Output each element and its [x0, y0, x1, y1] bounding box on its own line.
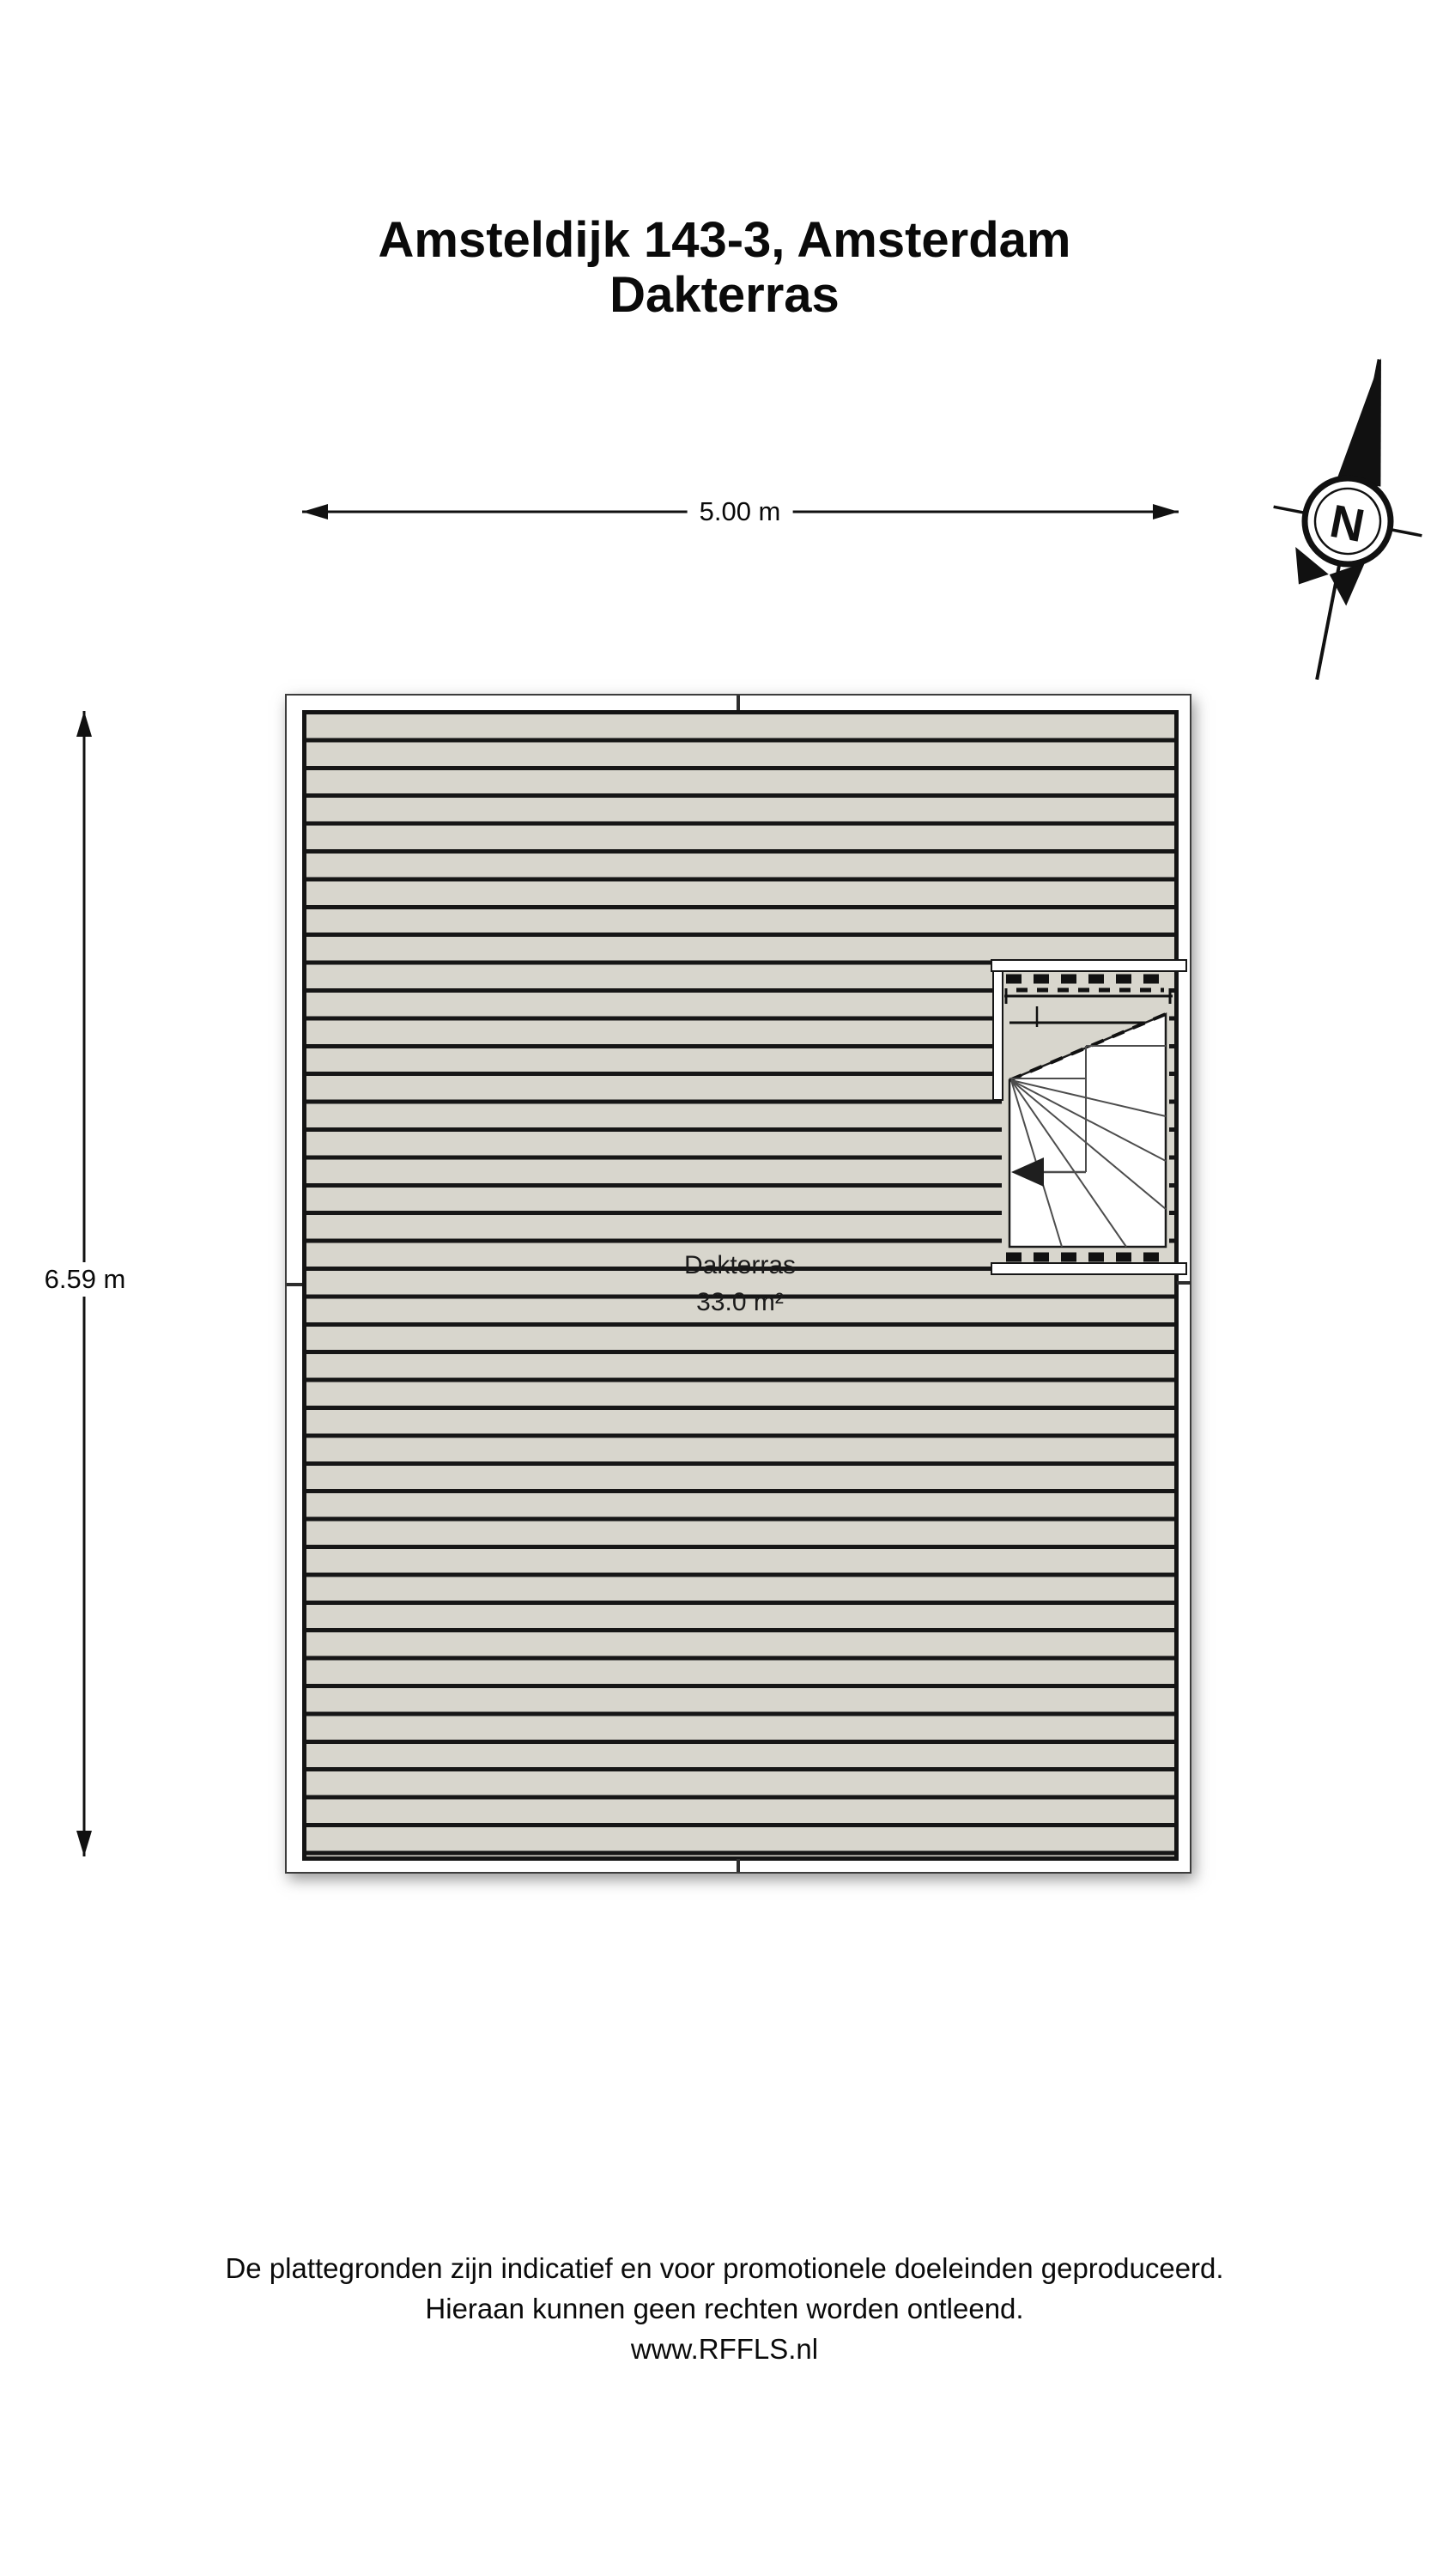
footer-line-1: De plattegronden zijn indicatief en voor… — [0, 2248, 1449, 2288]
parapet-joint-left — [287, 1283, 302, 1286]
dimension-height-label: 6.59 m — [33, 1262, 138, 1297]
title-address: Amsteldijk 143-3, Amsterdam — [0, 213, 1449, 268]
stair-wall-top — [991, 960, 1186, 971]
stair-wall-left — [993, 971, 1003, 1100]
arrow-left-icon — [302, 504, 328, 519]
floorplan-page: Amsteldijk 143-3, Amsterdam Dakterras N … — [0, 0, 1449, 2576]
parapet-joint-bottom — [737, 1859, 740, 1872]
parapet-joint-right — [1177, 1281, 1191, 1285]
parapet-joint-top — [737, 696, 740, 710]
footer-website: www.RFFLS.nl — [0, 2329, 1449, 2369]
arrow-right-icon — [1153, 504, 1179, 519]
dimension-width-label: 5.00 m — [688, 495, 793, 529]
title-floor: Dakterras — [0, 268, 1449, 323]
arrow-down-icon — [76, 1831, 92, 1856]
compass-north-pointer — [1337, 354, 1405, 489]
room-area: 33.0 m² — [684, 1284, 796, 1321]
compass-north-icon: N — [1262, 339, 1442, 700]
room-name: Dakterras — [684, 1247, 796, 1284]
stair-wall-bottom — [991, 1263, 1186, 1274]
stairwell — [987, 953, 1193, 1279]
arrow-up-icon — [76, 711, 92, 737]
page-title: Amsteldijk 143-3, Amsterdam Dakterras — [0, 213, 1449, 323]
footer-disclaimer: De plattegronden zijn indicatief en voor… — [0, 2248, 1449, 2369]
footer-line-2: Hieraan kunnen geen rechten worden ontle… — [0, 2288, 1449, 2329]
room-label: Dakterras 33.0 m² — [684, 1247, 796, 1321]
